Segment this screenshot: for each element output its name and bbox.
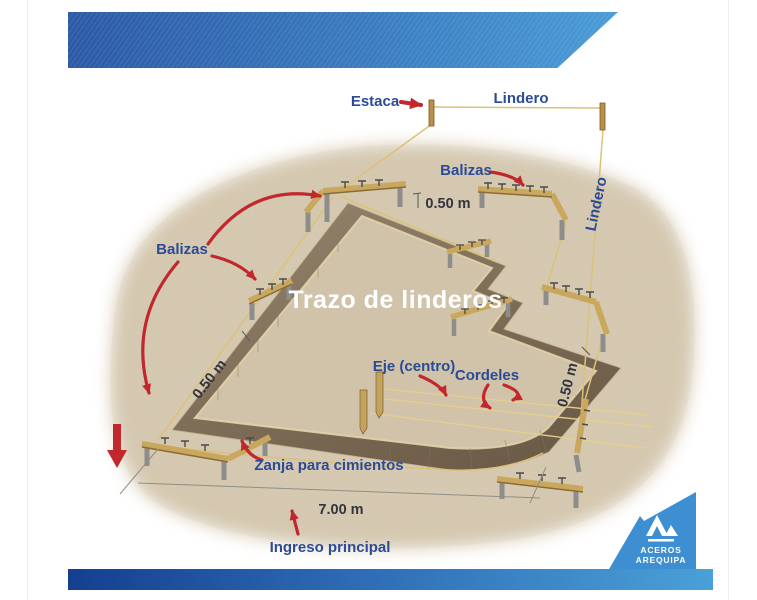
infographic-poster: Trazo de linderos	[0, 0, 757, 600]
page-title: Trazo de linderos	[0, 0, 757, 600]
